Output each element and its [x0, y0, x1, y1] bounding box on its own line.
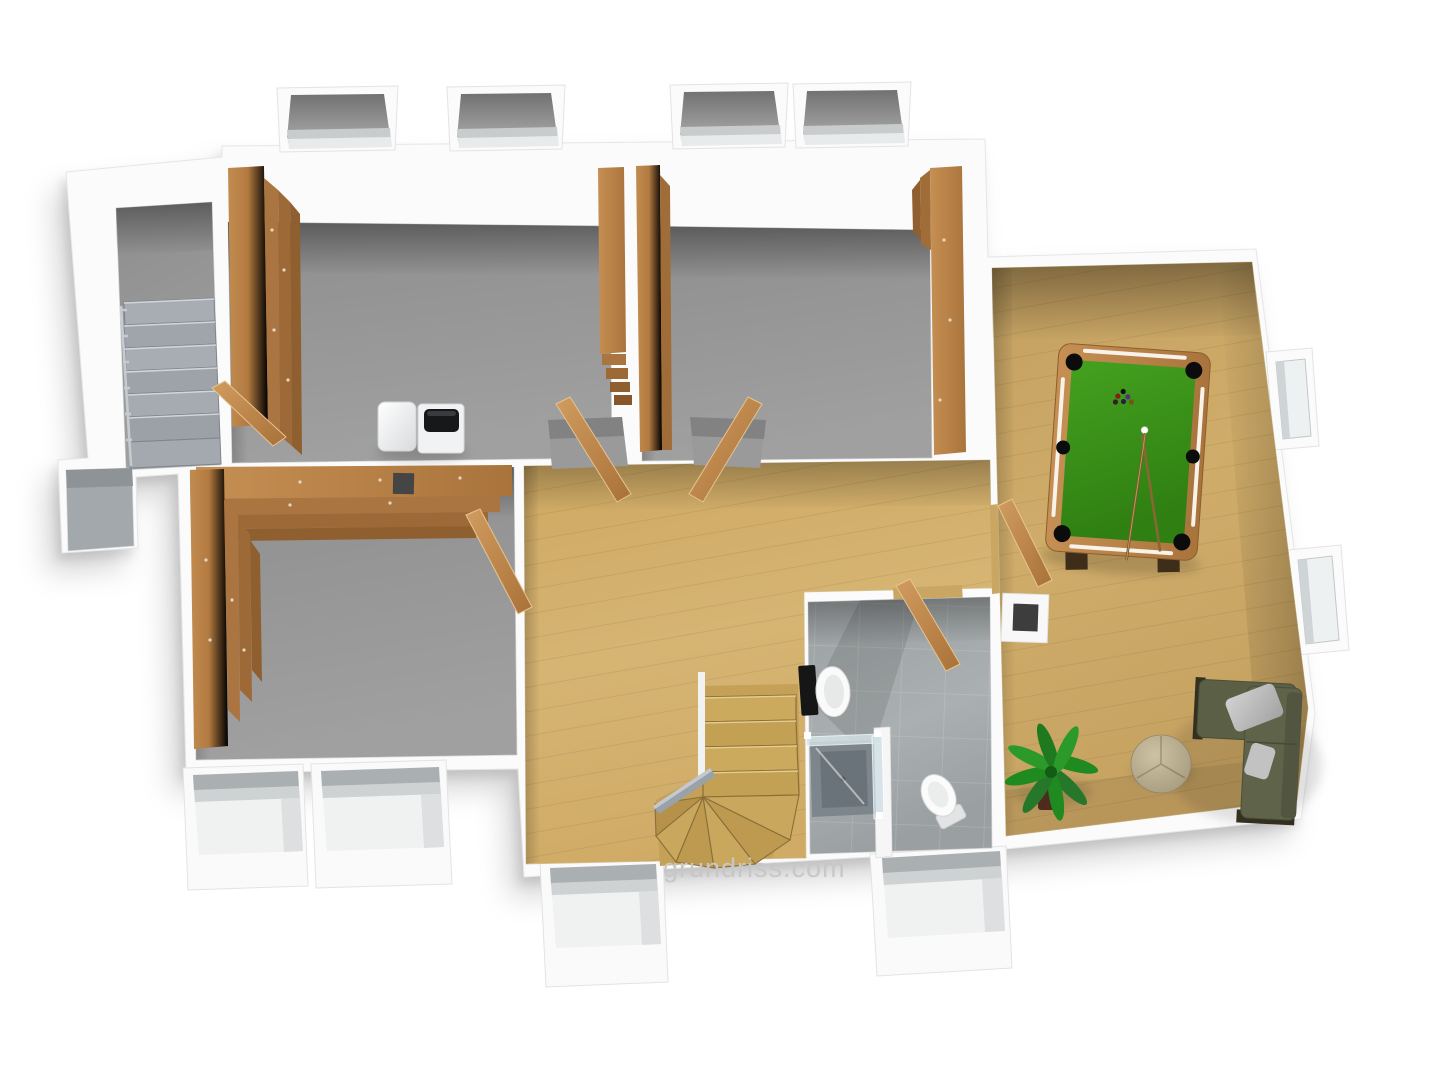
- hobby-room: [992, 262, 1327, 836]
- window-light-well: [670, 83, 788, 149]
- stair-stringer: [698, 672, 705, 780]
- shower-enclosure: [804, 730, 884, 819]
- floor-plan-canvas: [0, 0, 1440, 1080]
- shower-glass-right: [872, 735, 884, 819]
- pool-felt: [1060, 360, 1196, 544]
- pool-table: [1040, 343, 1215, 580]
- wall-niche-box: [1001, 593, 1049, 643]
- bathroom: [798, 579, 992, 858]
- watermark: grundriss.com: [663, 853, 846, 884]
- cue-ball: [1141, 426, 1148, 433]
- wall-niche: [393, 473, 414, 494]
- white-appliance: [378, 402, 416, 451]
- washing-machine-group: [376, 402, 468, 462]
- window-well-interior: [193, 771, 303, 855]
- window-well-interior: [882, 851, 1005, 938]
- window-well-interior: [321, 767, 444, 851]
- exterior-stairs: [121, 298, 221, 468]
- storage-room-lower-left: [190, 465, 532, 760]
- window-light-well: [447, 85, 565, 151]
- window-well-interior: [550, 864, 661, 948]
- wall-shelf-divider-right: [636, 165, 672, 452]
- floor-plan-render: grundriss.com: [0, 0, 1440, 1080]
- window-light-wells-top: [277, 82, 911, 152]
- wall-niche: [1013, 604, 1039, 632]
- window-light-well: [277, 86, 398, 152]
- window-light-well: [793, 82, 911, 148]
